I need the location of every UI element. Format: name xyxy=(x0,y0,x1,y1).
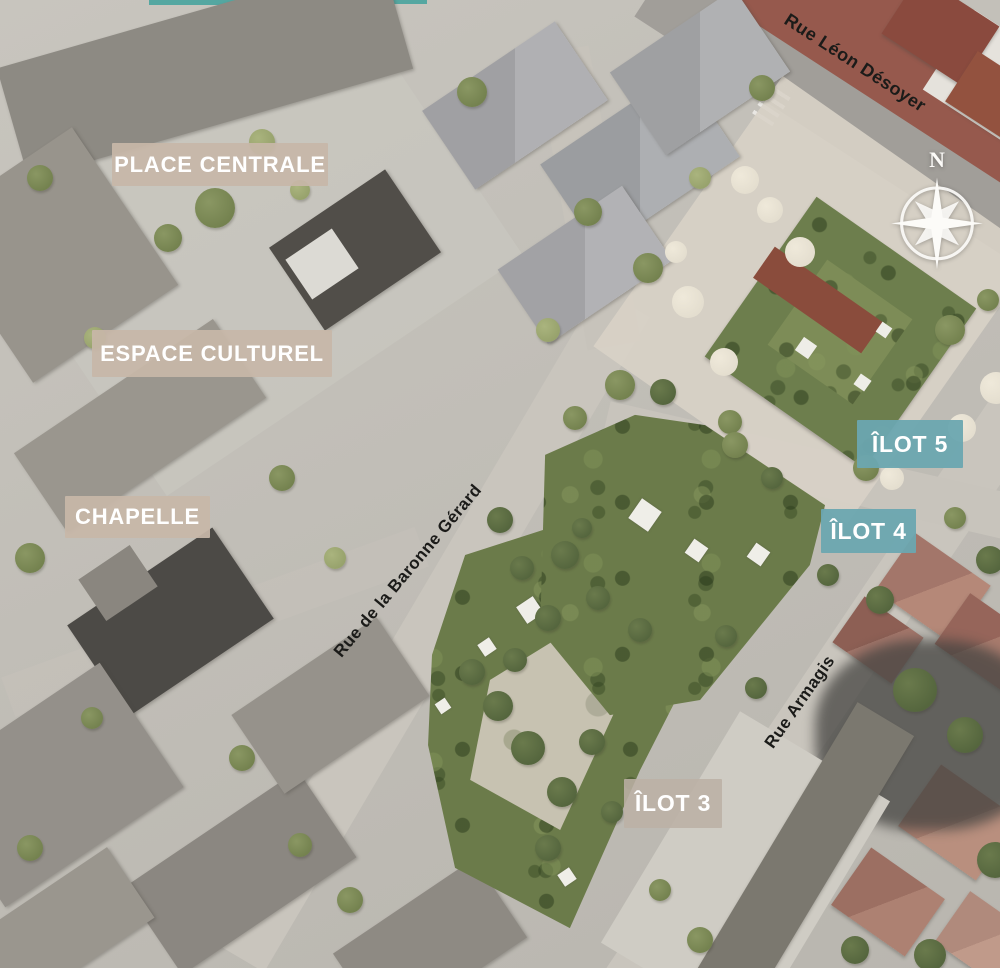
tree xyxy=(195,188,235,228)
tree xyxy=(229,745,255,771)
tree xyxy=(947,717,983,753)
roof-skylight xyxy=(685,539,709,563)
tree xyxy=(457,77,487,107)
tree xyxy=(817,564,839,586)
tree xyxy=(605,370,635,400)
area-label-chapelle: CHAPELLE xyxy=(65,496,210,538)
area-label-place-centrale: PLACE CENTRALE xyxy=(112,143,328,186)
tree xyxy=(324,547,346,569)
tree xyxy=(718,410,742,434)
tree xyxy=(710,348,738,376)
tree xyxy=(649,879,671,901)
tree xyxy=(633,253,663,283)
tree xyxy=(841,936,869,964)
tree xyxy=(154,224,182,252)
tree xyxy=(536,318,560,342)
tree xyxy=(672,286,704,318)
tree xyxy=(586,586,610,610)
tree xyxy=(731,166,759,194)
tree xyxy=(269,465,295,491)
tree xyxy=(535,605,561,631)
tree xyxy=(628,618,652,642)
tree xyxy=(510,556,534,580)
tree xyxy=(977,289,999,311)
tree xyxy=(15,543,45,573)
roof-skylight xyxy=(477,637,496,656)
tree xyxy=(27,165,53,191)
tree xyxy=(761,467,783,489)
tree xyxy=(535,835,561,861)
tree xyxy=(976,546,1000,574)
tree xyxy=(944,507,966,529)
tree xyxy=(893,668,937,712)
tree xyxy=(601,801,623,823)
tree xyxy=(749,75,775,101)
roof-skylight xyxy=(557,867,576,886)
tree xyxy=(880,466,904,490)
tree xyxy=(459,659,485,685)
tree xyxy=(551,541,579,569)
roof-skylight xyxy=(747,543,771,567)
tree xyxy=(687,927,713,953)
tree xyxy=(980,372,1000,404)
tree xyxy=(288,833,312,857)
roof-skylight xyxy=(435,698,452,715)
roof-skylight xyxy=(628,498,661,531)
tree xyxy=(337,887,363,913)
area-label-espace-culturel: ESPACE CULTUREL xyxy=(92,330,332,377)
tree xyxy=(715,625,737,647)
area-label-ilot-4: ÎLOT 4 xyxy=(821,509,916,553)
tree xyxy=(757,197,783,223)
tree xyxy=(17,835,43,861)
tree xyxy=(483,691,513,721)
tree xyxy=(665,241,687,263)
tree xyxy=(572,518,592,538)
aerial-map: Rue Léon Désoyer Rue de la Baronne Gérar… xyxy=(0,0,1000,968)
tree xyxy=(487,507,513,533)
tree xyxy=(563,406,587,430)
tree xyxy=(745,677,767,699)
tree xyxy=(503,648,527,672)
tree xyxy=(914,939,946,968)
tree xyxy=(866,586,894,614)
tree xyxy=(935,315,965,345)
tree xyxy=(785,237,815,267)
tree xyxy=(689,167,711,189)
tree xyxy=(722,432,748,458)
area-label-ilot-5: ÎLOT 5 xyxy=(857,420,963,468)
tree xyxy=(81,707,103,729)
tree xyxy=(574,198,602,226)
tree xyxy=(547,777,577,807)
compass-north-letter: N xyxy=(929,148,945,172)
tree xyxy=(511,731,545,765)
area-label-ilot-3: ÎLOT 3 xyxy=(624,779,722,828)
tree xyxy=(650,379,676,405)
tree xyxy=(579,729,605,755)
compass-rose-icon: N xyxy=(885,148,989,280)
